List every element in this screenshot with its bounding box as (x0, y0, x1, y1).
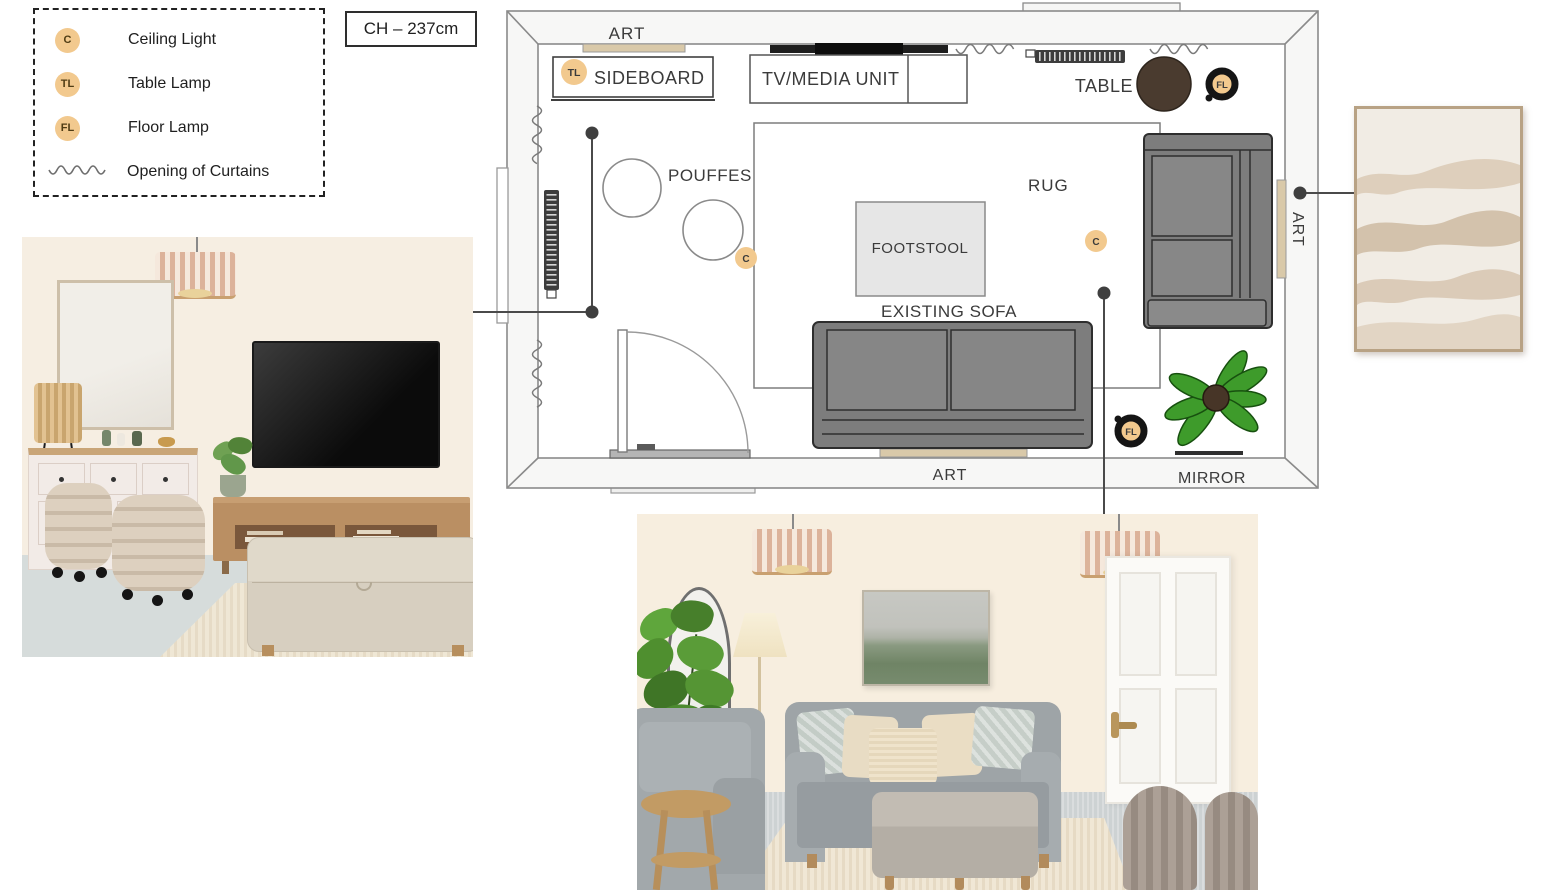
wall-mirror-strip (1175, 451, 1243, 455)
radiator-left (544, 190, 559, 298)
legend-item-label: Floor Lamp (128, 119, 209, 137)
ottoman-handle (356, 582, 372, 591)
floor-lamp-marker: FL (1115, 416, 1145, 445)
footstool-label: FOOTSTOOL (872, 240, 969, 257)
door-panel (1175, 688, 1217, 784)
table-lamp-symbol: TL (55, 72, 80, 97)
footstool-leg (1021, 876, 1030, 890)
svg-text:FL: FL (1216, 80, 1228, 91)
sofa-leg (1039, 854, 1049, 868)
floor-lamp-symbol: FL (55, 116, 80, 141)
footstool (872, 792, 1038, 878)
side-table-shelf (651, 852, 721, 868)
wall-art-strip (880, 449, 1027, 457)
door (1105, 556, 1231, 804)
rug-label: RUG (1028, 176, 1069, 195)
floor-lamp-marker: FL (1206, 71, 1236, 102)
sideboard-label: SIDEBOARD (594, 68, 705, 88)
door-panel (1175, 572, 1217, 676)
art-top-label: ART (609, 24, 646, 43)
ceiling-height-label: CH – 237cm (364, 19, 458, 39)
caster-wheel (182, 589, 193, 600)
sectional-sofa (1144, 134, 1272, 328)
art-bottom-label: ART (933, 467, 968, 484)
plant-pot (220, 475, 246, 497)
render-tv-wall-view (22, 237, 473, 657)
legend-item-label: Table Lamp (128, 75, 211, 93)
ceiling-height-box: CH – 237cm (345, 11, 477, 47)
legend-item-label: Opening of Curtains (127, 163, 269, 181)
drawer-knob (59, 477, 64, 482)
legend-item-table-lamp: TL Table Lamp (47, 62, 323, 106)
landscape-art (862, 590, 990, 686)
decor-vase (132, 431, 142, 446)
door-panel (1119, 572, 1161, 676)
pouffe-circle (683, 200, 743, 260)
ottoman-foot (262, 645, 274, 656)
callout-dot (1098, 287, 1111, 300)
ceiling-light-symbol: C (55, 28, 80, 53)
wall-art-strip (583, 44, 685, 52)
art-right-label: ART (1289, 212, 1306, 247)
pouffes-label: POUFFES (668, 166, 752, 185)
pouf (1205, 792, 1258, 890)
svg-text:TL: TL (568, 67, 581, 79)
drawer-knob (111, 477, 116, 482)
tv-media-unit: TV/MEDIA UNIT (750, 55, 967, 103)
existing-sofa (813, 322, 1092, 448)
drawer-knob (163, 477, 168, 482)
door-handle-base (1111, 712, 1119, 738)
tv-media-unit-label: TV/MEDIA UNIT (762, 69, 900, 89)
abstract-art-waves (1357, 109, 1520, 349)
footstool: FOOTSTOOL (856, 202, 985, 296)
caster-wheel (122, 589, 133, 600)
door-panel (1119, 688, 1161, 784)
abstract-art-piece (1354, 106, 1523, 352)
pouffe-circle (603, 159, 661, 217)
window (497, 168, 508, 323)
decor-bowl (158, 437, 175, 447)
radiator-top (1026, 50, 1125, 63)
pouffe (112, 495, 205, 591)
footstool-leg (885, 876, 894, 890)
callout-dot (586, 306, 599, 319)
legend-box: C Ceiling Light TL Table Lamp FL Floor L… (33, 8, 325, 197)
caster-wheel (52, 567, 63, 578)
decor-vase (117, 433, 125, 446)
table-lamp-marker: TL (561, 59, 587, 85)
ceiling-light-marker: C (1085, 230, 1107, 252)
table-label: TABLE (1075, 76, 1133, 96)
side-table-top (641, 790, 731, 818)
ceiling-light-marker: C (735, 247, 757, 269)
books (357, 530, 391, 534)
caster-wheel (152, 595, 163, 606)
table-lamp-shade (34, 383, 82, 443)
sofa-pillow (869, 728, 937, 786)
callout-dot (1294, 187, 1307, 200)
books (247, 531, 283, 535)
curtain-wave-icon (47, 162, 109, 183)
round-table (1137, 57, 1191, 111)
media-unit-leg (222, 561, 229, 574)
storage-ottoman (247, 537, 473, 652)
pouffe (45, 483, 112, 569)
pouf (1123, 786, 1197, 890)
footstool-leg (955, 878, 964, 890)
svg-text:FL: FL (1125, 427, 1137, 438)
mirror-label: MIRROR (1178, 470, 1246, 487)
sofa-leg (807, 854, 817, 868)
callout-dot (586, 127, 599, 140)
wall-art-strip (1277, 180, 1286, 278)
svg-text:C: C (742, 254, 749, 265)
decor-vase (102, 430, 111, 446)
legend-item-ceiling-light: C Ceiling Light (47, 18, 323, 62)
render-sofa-wall-view (637, 514, 1258, 890)
caster-wheel (74, 571, 85, 582)
svg-text:C: C (1092, 237, 1099, 248)
legend-item-curtain-opening: Opening of Curtains (47, 150, 323, 194)
pendant-glow (178, 289, 212, 298)
legend-item-floor-lamp: FL Floor Lamp (47, 106, 323, 150)
design-board: C Ceiling Light TL Table Lamp FL Floor L… (0, 0, 1556, 890)
tv-screen (252, 341, 440, 468)
legend-item-label: Ceiling Light (128, 31, 216, 49)
existing-sofa-label: EXISTING SOFA (881, 302, 1017, 321)
caster-wheel (96, 567, 107, 578)
pendant-glow (775, 565, 809, 574)
